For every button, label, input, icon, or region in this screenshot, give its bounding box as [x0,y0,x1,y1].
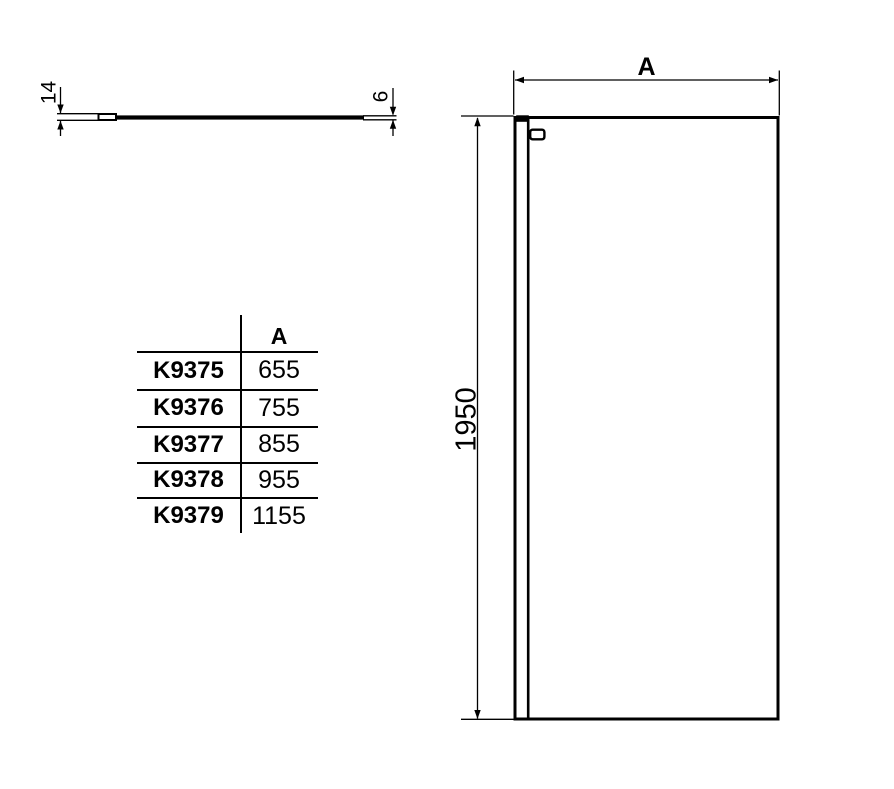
spec-table-header: A [137,320,318,353]
arrow-left-icon [515,77,524,83]
height-label: 1950 [451,387,483,452]
table-row: K9377 855 [137,428,318,462]
model-cell: K9376 [137,391,240,426]
arrow-down-icon [390,107,396,116]
arrow-down-icon [57,105,63,114]
profile-depth-label: 14 [38,81,61,105]
width-label: A [637,53,655,81]
model-cell: K9377 [137,428,240,462]
arrow-right-icon [769,77,778,83]
spec-table: A K9375 655 K9376 755 K9377 855 K9378 95… [137,314,318,534]
top-view-glass-section [117,115,365,119]
model-cell: K9378 [137,464,240,498]
top-view: 14 6 [38,81,397,136]
model-cell: K9379 [137,499,240,533]
panel-outline [515,118,778,720]
arrow-up-icon [57,121,63,130]
glass-thickness-label: 6 [370,91,393,103]
table-row: K9376 755 [137,391,318,426]
dimension-drawing: 14 6 A 1950 [0,0,894,789]
profile-top-cap [516,115,529,122]
width-cell: 655 [240,353,318,389]
technical-drawing-page: 14 6 A 1950 [0,0,894,789]
table-row: K9378 955 [137,464,318,498]
width-cell: 855 [240,428,318,462]
width-cell: 955 [240,464,318,498]
arrow-down-icon [474,710,480,719]
table-row: K9375 655 [137,353,318,389]
model-cell: K9375 [137,353,240,389]
arrow-up-icon [474,117,480,126]
width-header-cell: A [240,320,318,353]
top-view-wall-profile [99,114,117,120]
model-header-cell [137,320,240,353]
wall-bracket [530,130,544,140]
arrow-up-icon [390,120,396,129]
width-cell: 755 [240,391,318,426]
front-view: A 1950 [451,53,780,719]
table-row: K9379 1155 [137,499,318,533]
width-cell: 1155 [240,499,318,533]
